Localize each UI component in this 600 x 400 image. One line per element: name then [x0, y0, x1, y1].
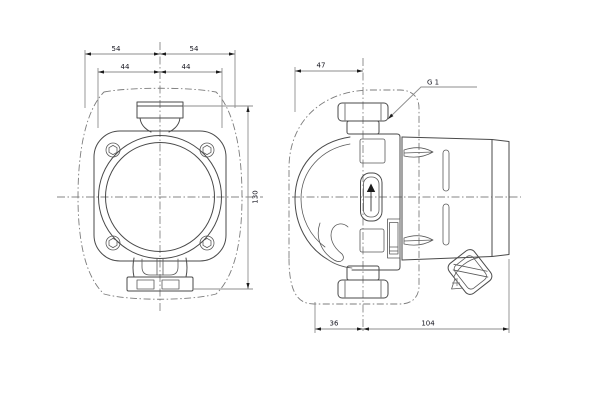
dim-label-36: 36 — [330, 320, 339, 328]
arrow — [216, 70, 222, 73]
ext-lines-130 — [183, 106, 253, 289]
front-view-dimensions: 54 54 44 44 130 — [85, 45, 260, 289]
volute-to-union — [327, 259, 352, 268]
arrow — [503, 327, 509, 330]
plug-inner — [452, 254, 488, 291]
plug-connector — [439, 247, 495, 302]
front-top-neck-left — [140, 118, 151, 132]
arrow — [315, 327, 321, 330]
arrow — [357, 327, 363, 330]
arrow — [160, 70, 166, 73]
arrow — [246, 283, 249, 289]
side-view — [289, 58, 521, 333]
dim-label-104: 104 — [421, 320, 435, 328]
front-view — [57, 42, 263, 312]
hex-screw-top-right — [203, 145, 211, 154]
arrow — [154, 52, 160, 55]
arrow — [229, 52, 235, 55]
front-top-neck-right — [169, 118, 180, 132]
plug-receptacle-inner — [390, 223, 399, 255]
arrow — [98, 70, 104, 73]
plug-receptacle-lines — [390, 247, 399, 251]
terminal-box-detail-right — [162, 280, 179, 289]
arrow — [160, 52, 166, 55]
dim-label-44-left: 44 — [121, 63, 130, 71]
arrow — [295, 69, 301, 72]
motor-vent-slot-bottom — [443, 204, 449, 245]
technical-drawing-page: 54 54 44 44 130 — [0, 0, 600, 400]
thread-label: G 1 — [427, 79, 439, 87]
dim-label-47: 47 — [317, 62, 326, 70]
arrow — [363, 327, 369, 330]
front-bottom-neck-left — [133, 258, 134, 277]
plug-tab — [448, 279, 462, 294]
flow-arrow-head — [367, 184, 375, 193]
front-bottom-neck-right — [186, 258, 187, 277]
dim-label-54-left: 54 — [112, 45, 121, 53]
arrow — [246, 106, 249, 112]
clamp-fin-bottom — [404, 236, 433, 245]
clamp-fin-top — [404, 148, 433, 157]
arrow — [357, 69, 363, 72]
motor-end-cap — [492, 140, 509, 257]
dim-label-54-right: 54 — [190, 45, 199, 53]
dim-label-44-right: 44 — [182, 63, 191, 71]
head-bottom-cutout — [360, 229, 384, 252]
pump-dimensional-drawing: 54 54 44 44 130 — [0, 0, 600, 400]
terminal-box-detail-left — [137, 280, 154, 289]
control-head-face — [352, 134, 400, 270]
dim-label-130: 130 — [252, 190, 260, 203]
thread-leader-line — [388, 87, 477, 119]
arrow — [154, 70, 160, 73]
hex-screw-top-left — [109, 145, 117, 154]
motor-vent-slot-top — [443, 150, 449, 191]
head-top-cutout — [360, 139, 385, 163]
motor-top-bottom — [402, 137, 492, 260]
arrow — [85, 52, 91, 55]
